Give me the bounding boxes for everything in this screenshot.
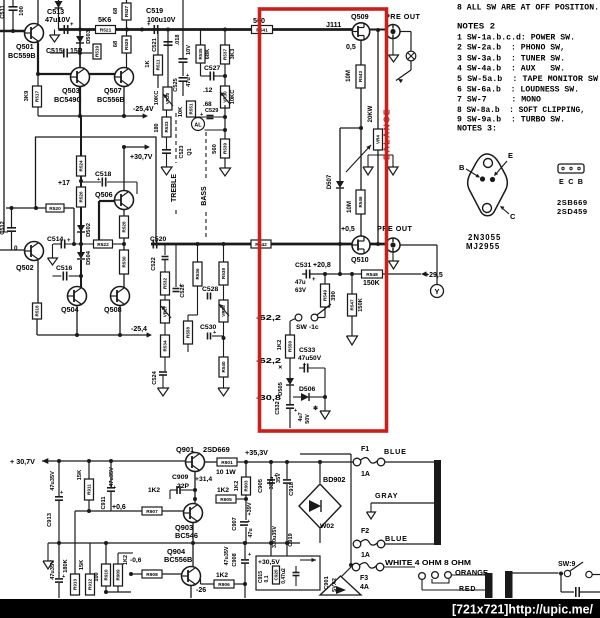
svg-text:R912: R912: [88, 579, 93, 590]
svg-text:Q501: Q501: [16, 42, 34, 51]
svg-text:5 SW-5a.b : TAPE MONITOR SW: 5 SW-5a.b : TAPE MONITOR SW: [457, 74, 599, 84]
svg-text:+: +: [60, 490, 63, 496]
svg-text:C523: C523: [179, 146, 185, 159]
svg-text:+: +: [294, 408, 297, 414]
svg-text:C920: C920: [274, 569, 279, 580]
svg-text:C521: C521: [152, 37, 158, 52]
svg-text:-0,6: -0,6: [130, 557, 142, 564]
svg-text:D504: D504: [86, 250, 92, 265]
svg-text:D507: D507: [327, 174, 333, 189]
svg-text:8 SW-8a.b : SOFT CLIPPING,: 8 SW-8a.b : SOFT CLIPPING,: [457, 105, 585, 115]
svg-text:F3: F3: [360, 575, 368, 582]
svg-text:+17: +17: [58, 180, 70, 187]
svg-text:47u35V: 47u35V: [109, 467, 115, 487]
svg-text:100u10V: 100u10V: [147, 17, 176, 24]
svg-text:R558: R558: [186, 327, 191, 338]
svg-text:+: +: [248, 552, 251, 558]
svg-text:R530: R530: [122, 256, 127, 267]
svg-text:MJ2955: MJ2955: [466, 242, 500, 251]
svg-text:47u35V: 47u35V: [50, 560, 56, 580]
svg-text:R546: R546: [358, 196, 363, 207]
svg-text:C520: C520: [150, 236, 166, 243]
svg-text:C527: C527: [204, 65, 220, 72]
svg-text:-25,4V: -25,4V: [133, 106, 154, 113]
svg-text:R534: R534: [163, 340, 168, 351]
svg-text:Q507: Q507: [104, 86, 122, 95]
svg-text:C516: C516: [56, 265, 72, 272]
svg-text:D503: D503: [86, 29, 92, 44]
svg-text:-25,4: -25,4: [131, 326, 147, 333]
svg-text:R518: R518: [35, 305, 40, 316]
svg-text:BC556B: BC556B: [164, 555, 192, 564]
svg-text:VR4: VR4: [376, 135, 381, 144]
svg-text:C905: C905: [258, 478, 264, 493]
svg-text:TREBLE: TREBLE: [171, 174, 178, 202]
svg-text:1K2: 1K2: [216, 572, 228, 579]
svg-text:180: 180: [154, 123, 160, 132]
svg-text:0,1: 0,1: [264, 575, 270, 582]
svg-text:✕: ✕: [278, 364, 283, 371]
svg-text:BC559B: BC559B: [8, 51, 36, 60]
svg-text:R550: R550: [288, 341, 293, 352]
svg-text:C519: C519: [146, 6, 163, 15]
svg-text:Q508: Q508: [104, 305, 122, 314]
svg-text:Q506: Q506: [95, 190, 113, 199]
svg-text:15K: 15K: [77, 469, 83, 480]
svg-text:2N3055: 2N3055: [468, 233, 501, 242]
svg-text:R903: R903: [244, 480, 249, 491]
svg-text:150K: 150K: [363, 280, 380, 287]
svg-text:R517: R517: [35, 91, 40, 102]
svg-text:1K2: 1K2: [217, 487, 229, 494]
svg-text:6 SW-6a.b : LOUDNESS SW.: 6 SW-6a.b : LOUDNESS SW.: [457, 85, 579, 95]
svg-text:3K3: 3K3: [230, 48, 236, 59]
svg-text:1 SW-1a.b.c.d: POWER SW.: 1 SW-1a.b.c.d: POWER SW.: [457, 33, 575, 43]
svg-text:Q502: Q502: [16, 263, 34, 272]
svg-text:C901: C901: [324, 576, 330, 589]
svg-text:R905: R905: [220, 497, 232, 503]
svg-text:C531: C531: [295, 262, 311, 269]
svg-text:R524: R524: [79, 160, 84, 171]
svg-text:8 ALL SW ARE AT OFF POSITION.: 8 ALL SW ARE AT OFF POSITION.: [457, 3, 599, 13]
svg-text:BC549C: BC549C: [54, 95, 82, 104]
svg-text:R538: R538: [221, 268, 226, 279]
svg-text:+39V: +39V: [247, 502, 253, 515]
svg-text:C524: C524: [152, 370, 158, 384]
svg-text:W02: W02: [320, 523, 334, 530]
svg-text:R901: R901: [221, 460, 233, 466]
svg-text:BC546: BC546: [175, 531, 198, 540]
svg-text:R522: R522: [97, 242, 109, 248]
svg-text:C512: C512: [0, 221, 6, 234]
svg-text:R908: R908: [146, 572, 158, 578]
svg-text:7 SW-7 : MONO: 7 SW-7 : MONO: [457, 95, 541, 105]
svg-text:47u: 47u: [186, 77, 192, 87]
svg-text:C522: C522: [151, 257, 157, 270]
svg-text:2 SW-2a.b : PHONO SW,: 2 SW-2a.b : PHONO SW,: [457, 43, 565, 53]
svg-text:1A: 1A: [361, 552, 370, 559]
svg-text:J111: J111: [326, 20, 341, 29]
svg-text:47u35V: 47u35V: [50, 471, 56, 491]
svg-text:BALANCE: BALANCE: [382, 108, 392, 160]
svg-text:1K2: 1K2: [277, 340, 283, 351]
svg-text:C529: C529: [205, 108, 218, 114]
svg-text:1K2: 1K2: [148, 487, 160, 494]
svg-text:R910: R910: [104, 569, 109, 580]
svg-text:Q503: Q503: [62, 86, 80, 95]
svg-text:10KC: 10KC: [230, 89, 236, 105]
svg-text:.12: .12: [203, 87, 213, 94]
svg-text:1A: 1A: [361, 471, 370, 478]
svg-text:SW -1c: SW -1c: [296, 324, 319, 331]
svg-text:0,5: 0,5: [346, 44, 356, 51]
svg-text:BC556B: BC556B: [97, 95, 125, 104]
svg-text:+: +: [303, 362, 306, 368]
svg-text:22P: 22P: [177, 483, 190, 490]
svg-text:+30,7V: +30,7V: [130, 154, 153, 161]
svg-text:10M: 10M: [346, 70, 352, 82]
svg-text:D506: D506: [299, 386, 315, 393]
svg-text:+35,3V: +35,3V: [245, 448, 268, 457]
svg-text:100: 100: [94, 572, 100, 581]
svg-text:R909: R909: [116, 569, 121, 580]
svg-text:C919: C919: [288, 533, 294, 546]
svg-text:4 SW-4a.b : AUX SW.: 4 SW-4a.b : AUX SW.: [457, 64, 565, 74]
svg-text:15K: 15K: [79, 560, 85, 570]
svg-text:C528: C528: [202, 286, 218, 293]
svg-text:0,47u2: 0,47u2: [281, 568, 287, 584]
svg-text:E C B: E C B: [559, 177, 584, 186]
svg-text:+29,5: +29,5: [425, 272, 443, 279]
svg-text:R540: R540: [221, 361, 226, 372]
svg-text:BASS: BASS: [201, 186, 208, 206]
svg-text:R532: R532: [163, 278, 168, 289]
svg-text:C532: C532: [275, 401, 281, 414]
svg-text:✻: ✻: [313, 405, 318, 412]
svg-text:Q1: Q1: [187, 148, 193, 155]
svg-text:5K6: 5K6: [98, 15, 111, 24]
svg-text:10KC: 10KC: [154, 90, 160, 106]
svg-text:+: +: [274, 473, 277, 479]
svg-text:4u7: 4u7: [298, 412, 304, 421]
svg-text:Q504: Q504: [61, 305, 79, 314]
svg-text:C: C: [510, 212, 516, 221]
svg-text:D502: D502: [86, 223, 92, 237]
svg-text:150K: 150K: [358, 297, 364, 312]
svg-text:47u: 47u: [248, 528, 254, 537]
svg-text:NOTES 2: NOTES 2: [457, 22, 495, 32]
svg-text:BD902: BD902: [323, 475, 345, 484]
svg-text:R543: R543: [358, 71, 363, 82]
svg-text:+: +: [70, 22, 74, 28]
svg-text:560: 560: [212, 144, 218, 154]
svg-text:100: 100: [19, 6, 25, 16]
svg-text:R528: R528: [122, 221, 127, 232]
svg-text:68: 68: [113, 40, 119, 47]
svg-text:180K: 180K: [63, 559, 69, 572]
svg-text:47u50V: 47u50V: [298, 355, 322, 362]
svg-text:R537: R537: [223, 49, 228, 60]
svg-text:+0,5: +0,5: [341, 226, 355, 233]
svg-text:Q510: Q510: [351, 255, 369, 264]
svg-text:R906: R906: [218, 582, 230, 588]
svg-text:.018: .018: [175, 35, 181, 46]
svg-text:R519: R519: [95, 46, 100, 57]
svg-text:47u35V: 47u35V: [224, 546, 230, 565]
svg-text:R535: R535: [198, 48, 203, 59]
svg-text:BLUE: BLUE: [385, 534, 408, 543]
svg-text:1K2: 1K2: [234, 481, 240, 492]
svg-text:R913: R913: [73, 579, 78, 590]
svg-text:+: +: [147, 22, 151, 28]
svg-text:C908: C908: [232, 553, 238, 566]
svg-text:C909: C909: [172, 474, 188, 481]
svg-text:C911: C911: [101, 496, 107, 509]
svg-text:R536: R536: [195, 268, 200, 279]
svg-text:C511: C511: [0, 4, 6, 18]
svg-text:R527: R527: [124, 6, 129, 17]
svg-text:2SD459: 2SD459: [557, 207, 588, 216]
svg-text:[721x721]http://upic.me/: [721x721]http://upic.me/: [452, 602, 593, 617]
svg-text:+ 30,7V: + 30,7V: [10, 457, 35, 466]
svg-text:C533: C533: [299, 347, 315, 354]
svg-text:47u10V: 47u10V: [45, 15, 70, 24]
svg-text:B: B: [459, 163, 465, 172]
svg-text:R520: R520: [49, 206, 61, 212]
svg-text:+: +: [312, 277, 316, 283]
svg-text:390: 390: [331, 291, 337, 301]
svg-text:C525: C525: [173, 78, 179, 91]
svg-text:2SD669: 2SD669: [203, 445, 230, 454]
svg-text:R526: R526: [79, 191, 84, 202]
svg-text:F1: F1: [361, 446, 369, 453]
svg-text:+: +: [67, 238, 71, 244]
svg-text:R911: R911: [87, 484, 92, 495]
svg-text:20KW: 20KW: [368, 105, 374, 122]
svg-text:C526: C526: [180, 284, 186, 297]
svg-text:1K2: 1K2: [123, 555, 129, 565]
svg-text:+: +: [97, 177, 100, 183]
svg-text:Y: Y: [434, 287, 439, 296]
svg-text:50V: 50V: [305, 414, 311, 424]
svg-text:BLUE: BLUE: [384, 447, 407, 456]
svg-text:E: E: [508, 151, 513, 160]
svg-text:-26: -26: [196, 587, 206, 594]
svg-text:C515: C515: [46, 48, 63, 55]
svg-text:10M: 10M: [347, 201, 353, 213]
svg-text:WHITE 4 OHM 8 OHM: WHITE 4 OHM 8 OHM: [385, 558, 471, 567]
svg-text:PRE OUT: PRE OUT: [377, 224, 413, 233]
svg-text:ORANGE: ORANGE: [455, 570, 488, 577]
svg-text:NOTES 3:: NOTES 3:: [457, 124, 497, 134]
svg-text:+30,5V: +30,5V: [258, 559, 280, 566]
svg-text:R521: R521: [100, 28, 112, 34]
svg-text:10K: 10K: [178, 107, 184, 117]
svg-text:330u35V: 330u35V: [272, 526, 278, 548]
svg-text:3 SW-3a.b : TUNER SW.: 3 SW-3a.b : TUNER SW.: [457, 54, 565, 64]
svg-text:AL: AL: [194, 123, 202, 129]
svg-text:PRE OUT: PRE OUT: [385, 12, 421, 21]
svg-text:5VX2: 5VX2: [332, 578, 338, 592]
svg-text:R907: R907: [146, 509, 158, 515]
svg-text:R549: R549: [323, 290, 328, 301]
svg-text:+31,4: +31,4: [195, 476, 212, 483]
svg-text:C907: C907: [232, 517, 238, 530]
svg-text:4A: 4A: [360, 584, 369, 591]
svg-text:+: +: [213, 330, 216, 336]
svg-text:0: 0: [14, 245, 18, 252]
svg-text:2SB669: 2SB669: [557, 198, 588, 207]
svg-text:47u: 47u: [295, 279, 306, 286]
svg-text:GRAY: GRAY: [375, 491, 398, 500]
svg-text:SW:9: SW:9: [558, 561, 575, 568]
svg-text:+0,6: +0,6: [112, 504, 126, 511]
svg-text:3K9: 3K9: [24, 90, 30, 101]
svg-text:F2: F2: [361, 528, 369, 535]
svg-text:R548: R548: [366, 272, 378, 278]
svg-text:1K: 1K: [145, 59, 151, 67]
svg-text:R547: R547: [350, 299, 355, 310]
svg-text:C913: C913: [47, 512, 53, 527]
svg-text:R539: R539: [223, 143, 228, 154]
svg-text:15P: 15P: [70, 48, 83, 55]
svg-text:68: 68: [113, 7, 119, 14]
svg-text:R511: R511: [156, 59, 161, 70]
svg-text:+20,8: +20,8: [313, 262, 331, 269]
svg-text:.68: .68: [203, 101, 212, 108]
svg-text:10 1W: 10 1W: [216, 469, 236, 476]
svg-text:D505: D505: [278, 382, 284, 395]
svg-text:63V: 63V: [295, 287, 307, 294]
svg-text:68K: 68K: [205, 48, 211, 59]
svg-text:10V: 10V: [186, 45, 192, 55]
svg-text:Q509: Q509: [351, 12, 369, 21]
svg-text:R551: R551: [189, 103, 194, 114]
svg-text:R529: R529: [124, 39, 129, 50]
svg-text:R533: R533: [164, 121, 169, 132]
